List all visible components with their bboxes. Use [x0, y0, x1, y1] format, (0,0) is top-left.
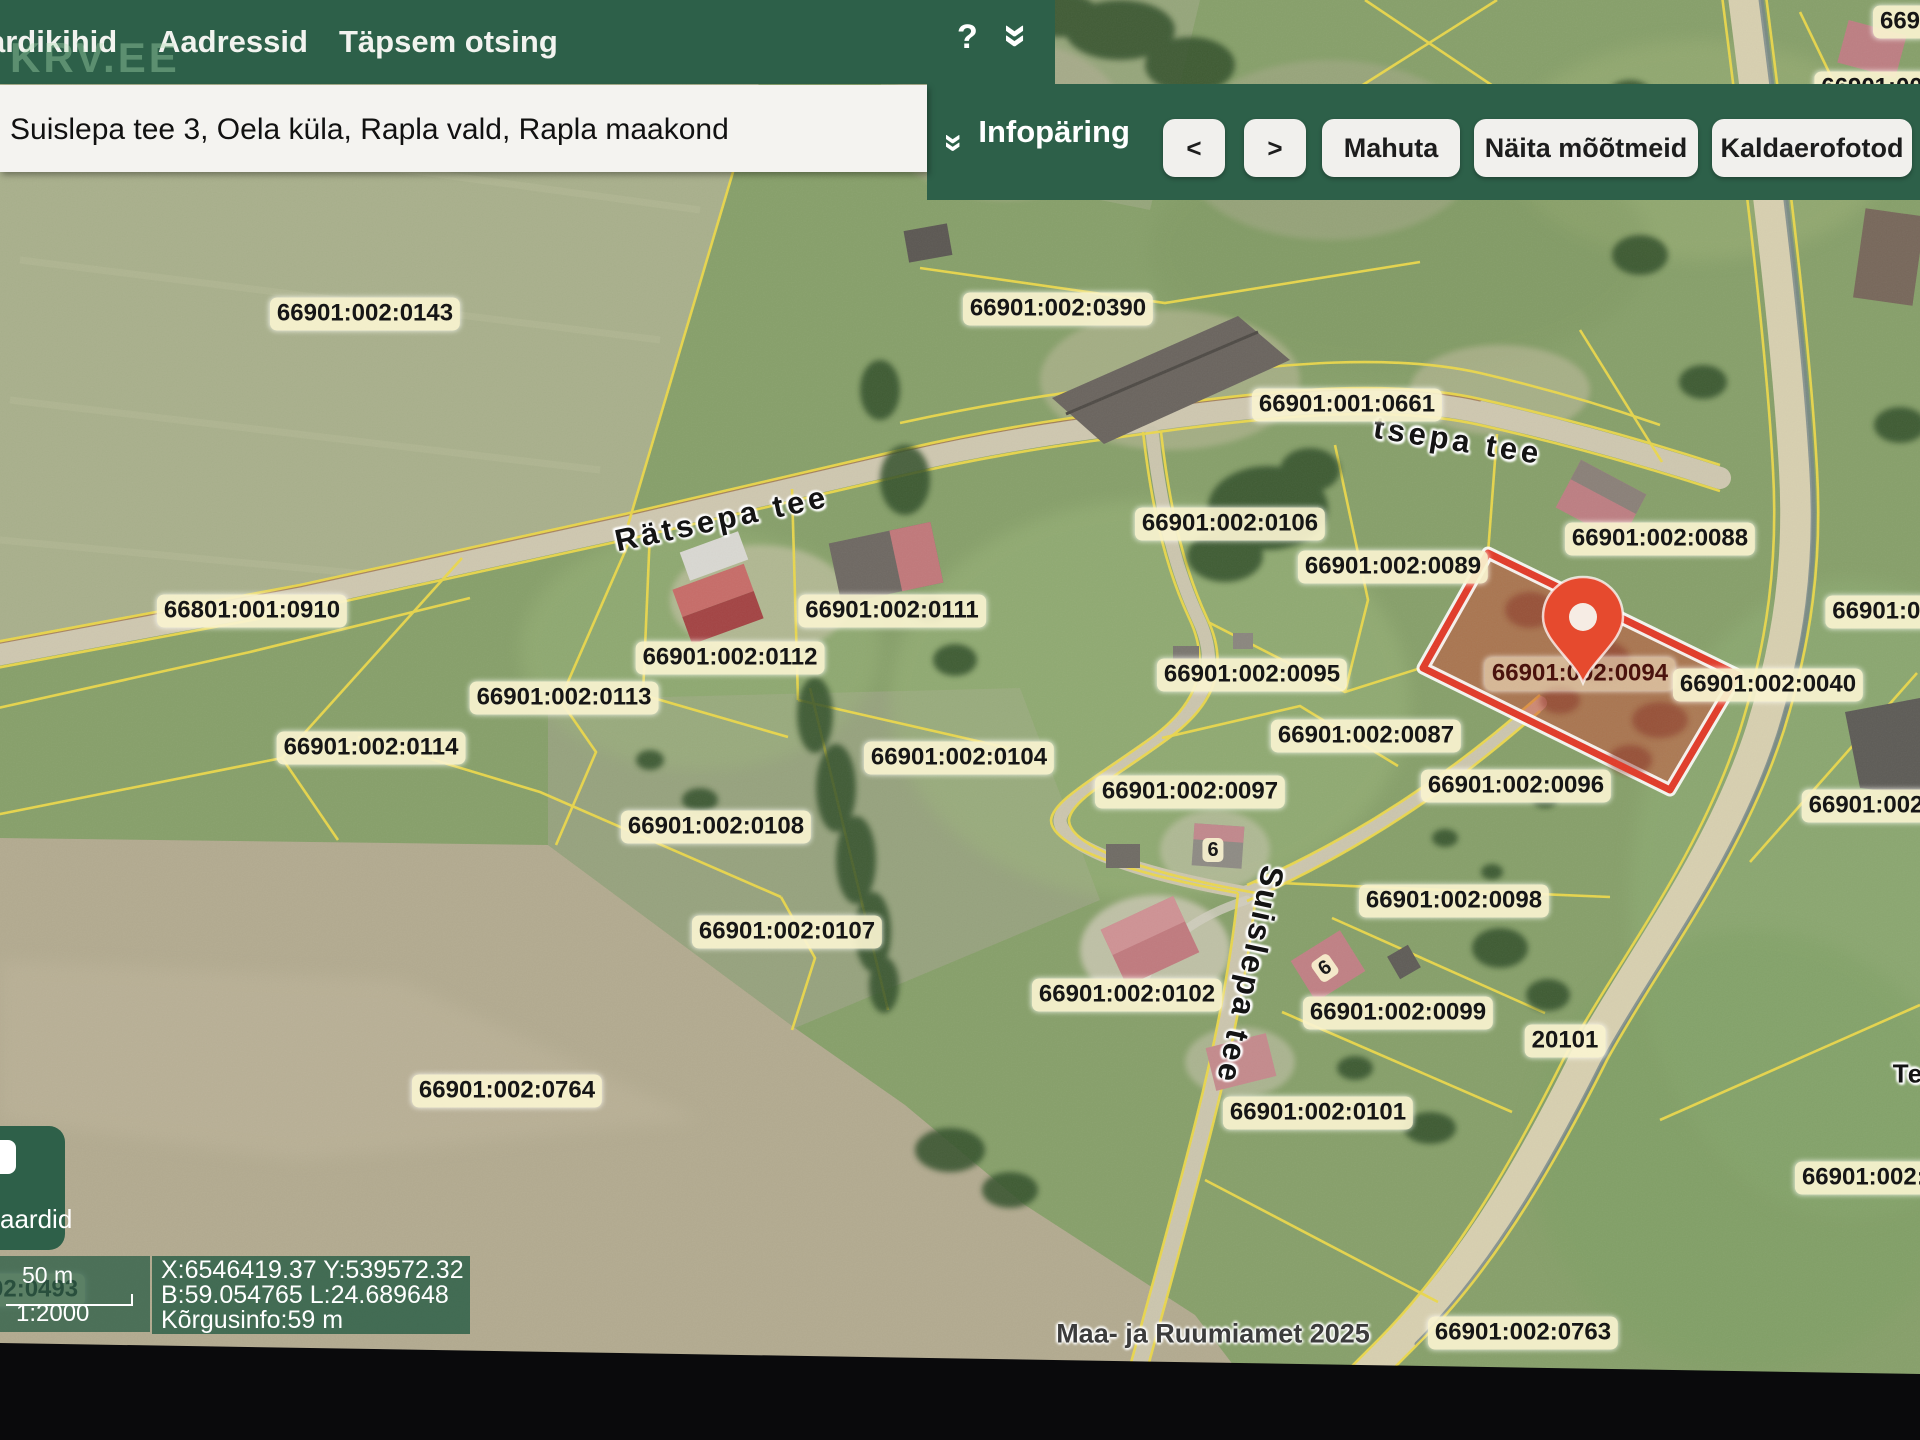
- address-search-input[interactable]: [8, 85, 922, 174]
- scale-distance: 50 m: [22, 1262, 73, 1289]
- infoparing-toggle[interactable]: » Infopäring: [945, 114, 1130, 163]
- nav-item-aadressid[interactable]: Aadressid: [158, 24, 308, 60]
- top-nav-bar: ardikihid Aadressid Täpsem otsing ? »: [0, 0, 1055, 84]
- double-chevron-down-icon: »: [934, 134, 974, 153]
- map-attribution: Maa- ja Ruumiamet 2025: [1056, 1319, 1370, 1350]
- coordinates-panel: X:6546419.37 Y:539572.32 B:59.054765 L:2…: [152, 1256, 470, 1334]
- prev-button[interactable]: <: [1163, 119, 1225, 177]
- layers-button-label: aardid: [0, 1204, 72, 1235]
- layers-icon: [0, 1140, 16, 1174]
- coords-xy: X:6546419.37 Y:539572.32: [152, 1258, 470, 1283]
- naita-mootmeid-button[interactable]: Näita mõõtmeid: [1474, 119, 1698, 177]
- coords-bl: B:59.054765 L:24.689648: [152, 1283, 470, 1308]
- aerial-map-canvas[interactable]: [0, 0, 1920, 1440]
- coords-elevation: Kõrgusinfo:59 m: [152, 1308, 470, 1333]
- layers-button[interactable]: aardid: [0, 1126, 65, 1250]
- collapse-nav-icon[interactable]: »: [1005, 16, 1029, 56]
- mahuta-button[interactable]: Mahuta: [1322, 119, 1460, 177]
- infoparing-label: Infopäring: [978, 114, 1130, 149]
- address-search-bar: [0, 85, 927, 172]
- nav-item-tapsem-otsing[interactable]: Täpsem otsing: [339, 24, 558, 60]
- help-icon[interactable]: ?: [957, 18, 978, 57]
- map-toolbar: » Infopäring < > Mahuta Näita mõõtmeid K…: [927, 84, 1920, 200]
- scale-panel: 50 m 1:2000: [0, 1256, 150, 1332]
- next-button[interactable]: >: [1244, 119, 1306, 177]
- map-application-window: 66901:002:049366901:002:014366901:002:03…: [0, 0, 1920, 1440]
- scale-ratio: 1:2000: [16, 1300, 89, 1328]
- kaldaerofotod-button[interactable]: Kaldaerofotod: [1712, 119, 1912, 177]
- nav-item-kaardikihid[interactable]: ardikihid: [0, 24, 117, 60]
